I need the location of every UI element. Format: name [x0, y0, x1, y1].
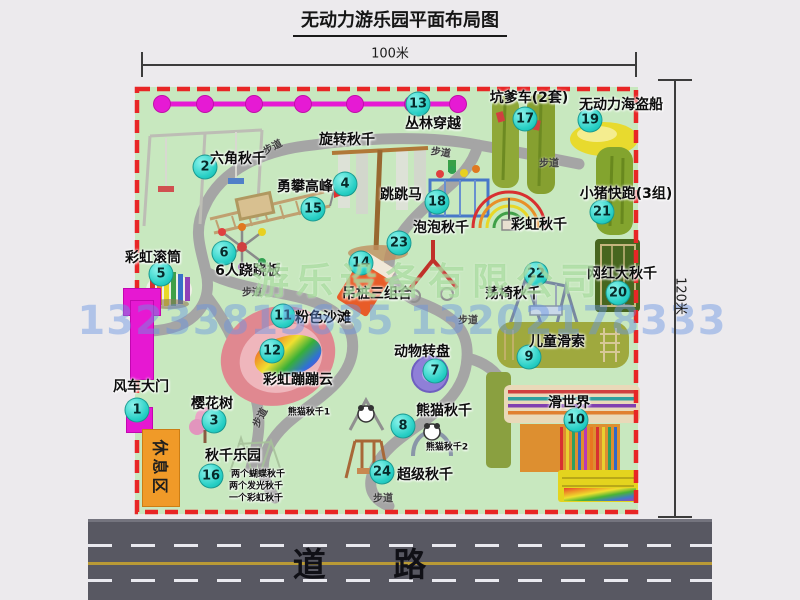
label-18: 跳跳马 — [380, 184, 422, 204]
label-19: 无动力海盗船 — [579, 94, 663, 114]
path-label-1: 步道 — [430, 142, 452, 160]
extra-label-1: 熊猫秋千1 — [288, 405, 330, 418]
extra-label-5: 一个彩虹秋千 — [229, 491, 283, 504]
dimension-tick-right-bottom — [658, 516, 692, 518]
layout-diagram-canvas: 无动力游乐园平面布局图 100米 120米 — [0, 0, 800, 600]
label-15: 勇攀高峰 — [277, 176, 333, 196]
label-13: 丛林穿越 — [405, 113, 461, 133]
dimension-label-height: 120米 — [673, 277, 692, 315]
label-2: 六角秋千 — [210, 148, 266, 168]
path-label-2: 步道 — [539, 155, 559, 170]
label-24: 超级秋千 — [397, 464, 453, 484]
label-8: 熊猫秋千 — [416, 400, 472, 420]
label-17: 坑爹车(2套) — [490, 87, 569, 107]
marker-16: 16 — [199, 464, 224, 489]
dimension-tick-top-left — [141, 52, 143, 77]
label-5: 彩虹滚筒 — [125, 247, 181, 267]
marker-18: 18 — [425, 190, 450, 215]
label-21: 小猪快跑(3组) — [580, 183, 673, 203]
marker-21: 21 — [590, 200, 615, 225]
path-label-5: 步道 — [248, 405, 271, 430]
label-3: 樱花树 — [191, 393, 233, 413]
extra-label-0: 彩虹秋千 — [511, 214, 567, 234]
marker-8: 8 — [391, 414, 416, 439]
dimension-line-top — [142, 64, 636, 66]
label-4: 旋转秋千 — [319, 129, 375, 149]
dimension-tick-top-right — [635, 52, 637, 77]
label-10: 滑世界 — [548, 392, 590, 412]
dimension-tick-right-top — [658, 79, 692, 81]
label-7: 动物转盘 — [394, 341, 450, 361]
page-title: 无动力游乐园平面布局图 — [293, 6, 507, 37]
label-23: 泡泡秋千 — [413, 217, 469, 237]
marker-4: 4 — [333, 172, 358, 197]
label-12: 彩虹蹦蹦云 — [263, 369, 333, 389]
watermark-phone: 13233815635 13202178333 — [77, 298, 726, 344]
marker-15: 15 — [301, 197, 326, 222]
marker-1: 1 — [125, 398, 150, 423]
marker-24: 24 — [370, 460, 395, 485]
marker-17: 17 — [513, 107, 538, 132]
marker-7: 7 — [423, 359, 448, 384]
path-label-6: 步道 — [373, 490, 393, 505]
extra-label-2: 熊猫秋千2 — [426, 440, 468, 453]
label-16: 秋千乐园 — [205, 445, 261, 465]
dimension-label-width: 100米 — [371, 43, 409, 62]
label-1: 风车大门 — [113, 376, 169, 396]
watermark-company: 游乐设备有限公司 — [252, 251, 604, 305]
